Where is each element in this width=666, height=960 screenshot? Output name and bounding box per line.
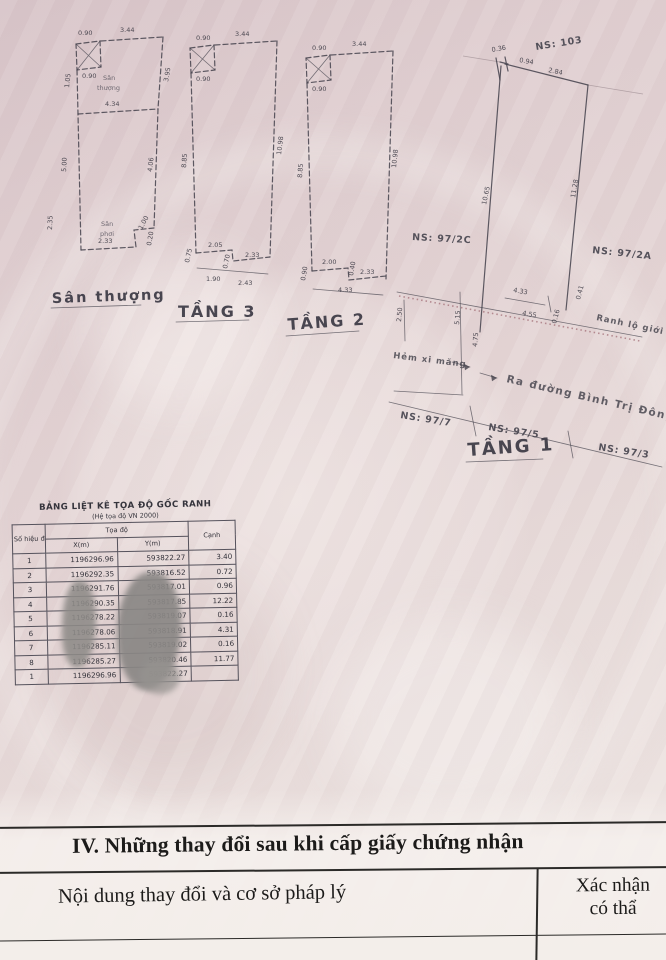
dim-label: 0.90: [196, 34, 210, 42]
edge-length: [191, 665, 238, 680]
point-id: 1: [13, 553, 46, 568]
redaction-smudge: [140, 660, 180, 694]
dim-label: 0.90: [299, 266, 309, 282]
col-header-y: Y(m): [117, 536, 189, 552]
col-header-canh: Cạnh: [188, 520, 236, 550]
plan-san-thuong: 0.90 3.44 0.90 1.05 5.00 3.95 4.34 4.06 …: [46, 26, 172, 308]
coord-x: 1196296.96: [48, 668, 120, 684]
dim-label: 5.15: [453, 310, 462, 325]
dim-label: 4.75: [471, 332, 480, 347]
stair-box-cross: [306, 55, 331, 83]
plan-title-tang-3: TẦNG 3: [178, 300, 257, 321]
edge-length: 3.40: [189, 549, 236, 564]
edge-length: 0.16: [190, 607, 237, 622]
coord-x: 1196296.96: [46, 552, 118, 568]
dim-label: 4.34: [105, 100, 119, 108]
street-label: Ra đường Bình Trị Đông: [505, 373, 666, 423]
dim-label: 2.33: [360, 268, 374, 276]
room-label: thượng: [97, 84, 120, 92]
col-header-x: X(m): [45, 537, 117, 553]
room-label: Sân: [103, 74, 115, 82]
dim-label: 0.41: [574, 284, 585, 300]
point-id: 3: [13, 582, 46, 597]
dim-label: 1.90: [206, 275, 220, 283]
dim-label: 0.20: [145, 231, 155, 247]
dim-label: 0.90: [196, 75, 210, 83]
edge-length: 12.22: [190, 593, 237, 608]
dim-label: 2.43: [238, 279, 252, 287]
dim-label: 3.44: [235, 30, 249, 38]
road-limit-label: Ranh lộ giới: [595, 312, 665, 337]
col-header-point: Số hiệu điểm: [12, 524, 46, 554]
dim-label: 0.90: [78, 29, 92, 37]
plan-title-san-thuong: Sân thượng: [52, 287, 166, 307]
dim-label: 2.33: [245, 251, 259, 259]
dim-label: 8.85: [180, 153, 189, 168]
dim-label: 3.44: [352, 40, 366, 48]
dim-label: 10.98: [390, 149, 400, 168]
stair-box-cross: [76, 41, 101, 70]
dim-label: 8.85: [296, 163, 305, 178]
edge-length: 0.96: [189, 578, 236, 593]
point-id: 1: [15, 669, 48, 684]
dim-label: 2.33: [98, 237, 112, 245]
point-id: 2: [13, 568, 46, 583]
dim-label: 4.33: [338, 286, 352, 294]
plan-title-tang-2: TẦNG 2: [287, 308, 367, 334]
dim-label: 0.90: [82, 72, 96, 80]
dim-label: 2.50: [395, 307, 404, 322]
dim-label: 0.90: [312, 85, 326, 93]
dim-label: 4.06: [146, 157, 155, 172]
edge-length: 11.77: [191, 651, 238, 666]
dim-label: 4.33: [513, 286, 529, 296]
dim-label: 0.36: [491, 44, 507, 54]
dim-label: 3.95: [162, 67, 172, 83]
page-bottom-lighting: [0, 790, 666, 960]
edge-length: 0.16: [190, 636, 237, 651]
coord-y: 593822.27: [117, 550, 189, 566]
point-id: 8: [15, 655, 48, 670]
dim-label: 1.05: [63, 73, 72, 88]
room-label: Sân: [101, 220, 113, 228]
house-number-label: NS: 97/2A: [592, 245, 653, 262]
point-id: 5: [14, 611, 47, 626]
dim-label: 0.70: [221, 254, 232, 270]
edge-length: 4.31: [190, 622, 237, 637]
direction-arrow: [491, 375, 497, 381]
dim-label: 0.40: [347, 261, 357, 277]
dim-label: 2.05: [208, 241, 222, 249]
dim-label: 4.55: [522, 309, 538, 319]
house-number-label: NS: 97/2C: [412, 232, 472, 246]
edge-length: 0.72: [189, 564, 236, 579]
plan-tang-1: 0.36 0.94 2.84 10.65 11.28 4.33 4.55 0.1…: [389, 35, 666, 467]
dim-label: 2.00: [322, 258, 336, 266]
dim-label: 11.28: [569, 179, 580, 199]
house-number-label: NS: 103: [535, 35, 583, 53]
room-label: phơi: [100, 230, 114, 238]
floor-plan-drawing: 0.90 3.44 0.90 1.05 5.00 3.95 4.34 4.06 …: [0, 0, 666, 495]
plan-tang-2: 0.90 3.44 0.90 8.85 10.98 2.00 2.33 4.33…: [286, 40, 400, 336]
stair-box-cross: [190, 45, 215, 73]
house-number-label: NS: 97/7: [400, 410, 453, 429]
dim-label: 0.94: [519, 56, 535, 66]
alley-label: Hẻm xi măng: [393, 350, 468, 370]
dim-label: 5.00: [60, 157, 69, 172]
point-id: 6: [14, 626, 47, 641]
dim-label: 0.75: [183, 248, 194, 264]
scanned-certificate-page: 0.90 3.44 0.90 1.05 5.00 3.95 4.34 4.06 …: [0, 0, 666, 960]
dim-label: 2.35: [46, 215, 55, 230]
point-id: 7: [15, 640, 48, 655]
dim-label: 10.98: [275, 136, 285, 155]
point-id: 4: [14, 597, 47, 612]
plan-tang-3: 0.90 3.44 0.90 8.85 10.98 2.05 2.33 1.90…: [176, 30, 285, 322]
dim-label: 0.90: [312, 44, 326, 52]
dim-label: 3.44: [120, 26, 134, 34]
